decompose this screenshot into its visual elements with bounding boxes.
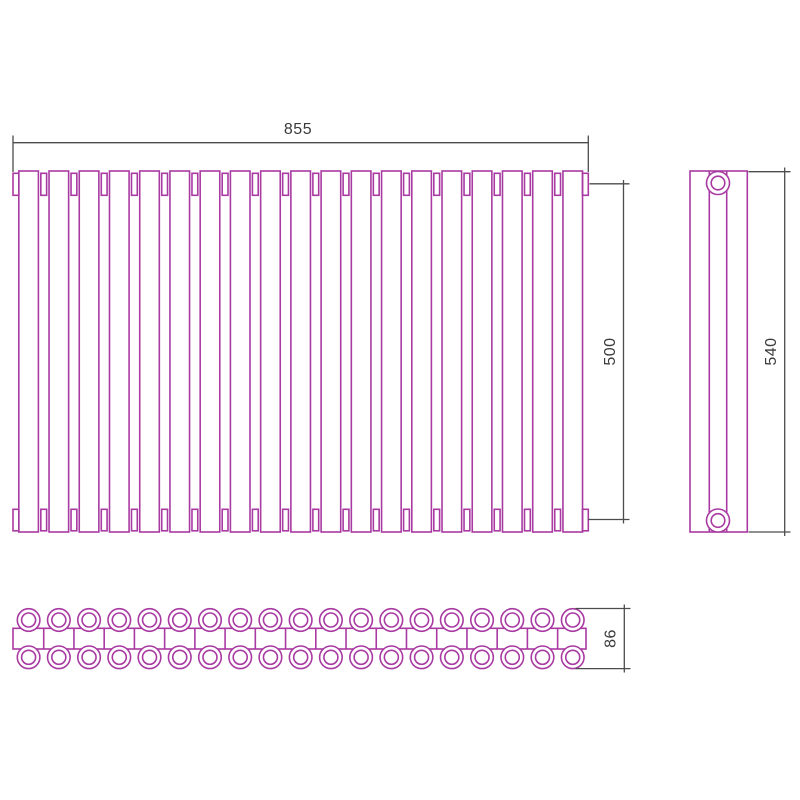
section-connector-bottom: [162, 509, 168, 531]
section-connector-bottom: [101, 509, 107, 531]
section-connector-top: [404, 173, 410, 195]
section-connector-top: [132, 173, 138, 195]
tube-section-outer-ring: [561, 646, 584, 669]
side-view: [690, 171, 747, 532]
section-connector-bottom: [252, 509, 258, 531]
tube-section-outer-ring: [289, 646, 312, 669]
end-cap-bottom: [583, 509, 589, 531]
tube-section-outer-ring: [17, 609, 40, 632]
section-connector-top: [525, 173, 531, 195]
end-cap-bottom: [13, 509, 19, 531]
section-connector-top: [283, 173, 289, 195]
tube-section-outer-ring: [410, 609, 433, 632]
bottom-view: [13, 609, 586, 669]
pipe-fitting-outer-ring: [707, 172, 730, 195]
section-connector-top: [494, 173, 500, 195]
tube-section-outer-ring: [350, 646, 373, 669]
tube-section-outer-ring: [289, 609, 312, 632]
tube: [109, 171, 129, 532]
section-connector-top: [222, 173, 228, 195]
section-connector-top: [101, 173, 107, 195]
tube-section-outer-ring: [531, 646, 554, 669]
tube-section-outer-ring: [501, 609, 524, 632]
tube-section-outer-ring: [48, 609, 71, 632]
radiator-drawing: 855 500 540 86: [0, 0, 800, 800]
tube-section-outer-ring: [17, 646, 40, 669]
tube-section-outer-ring: [78, 609, 101, 632]
tube-section-outer-ring: [229, 609, 252, 632]
tube-section-outer-ring: [138, 609, 161, 632]
tube-section-outer-ring: [441, 646, 464, 669]
section-connector-bottom: [494, 509, 500, 531]
tube: [140, 171, 160, 532]
section-connector-top: [192, 173, 198, 195]
tube-section-outer-ring: [168, 646, 191, 669]
side-outline: [690, 171, 747, 532]
section-connector-bottom: [313, 509, 319, 531]
dim-axis-spacing-label: 500: [602, 337, 619, 365]
section-connector-top: [555, 173, 561, 195]
section-connector-bottom: [555, 509, 561, 531]
end-cap-top: [583, 173, 589, 195]
section-connector-bottom: [525, 509, 531, 531]
tube-section-outer-ring: [199, 646, 222, 669]
section-connector-top: [162, 173, 168, 195]
tube-section-outer-ring: [501, 646, 524, 669]
tube: [19, 171, 39, 532]
tube: [563, 171, 583, 532]
tube-section-outer-ring: [561, 609, 584, 632]
pipe-fitting-outer-ring: [707, 509, 730, 532]
section-connector-top: [41, 173, 47, 195]
section-connector-bottom: [71, 509, 77, 531]
tube-section-outer-ring: [441, 609, 464, 632]
tube: [170, 171, 190, 532]
section-connector-bottom: [132, 509, 138, 531]
tube: [321, 171, 341, 532]
tube-section-outer-ring: [199, 609, 222, 632]
section-connector-bottom: [192, 509, 198, 531]
tube-section-outer-ring: [138, 646, 161, 669]
drawing-sheet: 855 500 540 86: [0, 0, 800, 800]
tube-section-outer-ring: [78, 646, 101, 669]
tube-section-outer-ring: [410, 646, 433, 669]
section-connector-bottom: [41, 509, 47, 531]
tube: [533, 171, 553, 532]
tube: [442, 171, 462, 532]
front-view: [13, 171, 588, 532]
tube: [261, 171, 281, 532]
tube-section-outer-ring: [471, 609, 494, 632]
tube: [230, 171, 250, 532]
tube: [472, 171, 492, 532]
dim-height-label: 540: [763, 337, 780, 365]
tube: [200, 171, 220, 532]
tube: [291, 171, 311, 532]
tube-section-outer-ring: [108, 646, 131, 669]
section-connector-top: [313, 173, 319, 195]
tube: [79, 171, 99, 532]
section-connector-bottom: [283, 509, 289, 531]
tube-section-outer-ring: [380, 646, 403, 669]
tube-section-outer-ring: [48, 646, 71, 669]
tube-section-outer-ring: [380, 609, 403, 632]
section-connector-bottom: [434, 509, 440, 531]
section-connector-top: [71, 173, 77, 195]
tube-section-outer-ring: [229, 646, 252, 669]
tube-section-outer-ring: [531, 609, 554, 632]
section-connector-top: [373, 173, 379, 195]
section-connector-bottom: [343, 509, 349, 531]
tube: [351, 171, 371, 532]
tube-section-outer-ring: [168, 609, 191, 632]
section-connector-bottom: [373, 509, 379, 531]
tube: [502, 171, 522, 532]
section-connector-top: [343, 173, 349, 195]
tube-section-outer-ring: [108, 609, 131, 632]
section-connector-bottom: [464, 509, 470, 531]
section-connector-top: [464, 173, 470, 195]
section-connector-bottom: [404, 509, 410, 531]
section-connector-top: [252, 173, 258, 195]
tube-section-outer-ring: [259, 609, 282, 632]
section-connector-top: [434, 173, 440, 195]
tube-section-outer-ring: [320, 646, 343, 669]
tube: [412, 171, 432, 532]
dim-width-label: 855: [284, 121, 312, 138]
tube: [382, 171, 402, 532]
tube-section-outer-ring: [320, 609, 343, 632]
end-cap-top: [13, 173, 19, 195]
dim-depth-label: 86: [603, 629, 620, 648]
tube-section-outer-ring: [471, 646, 494, 669]
tube-section-outer-ring: [259, 646, 282, 669]
section-connector-bottom: [222, 509, 228, 531]
tube: [49, 171, 69, 532]
tube-section-outer-ring: [350, 609, 373, 632]
